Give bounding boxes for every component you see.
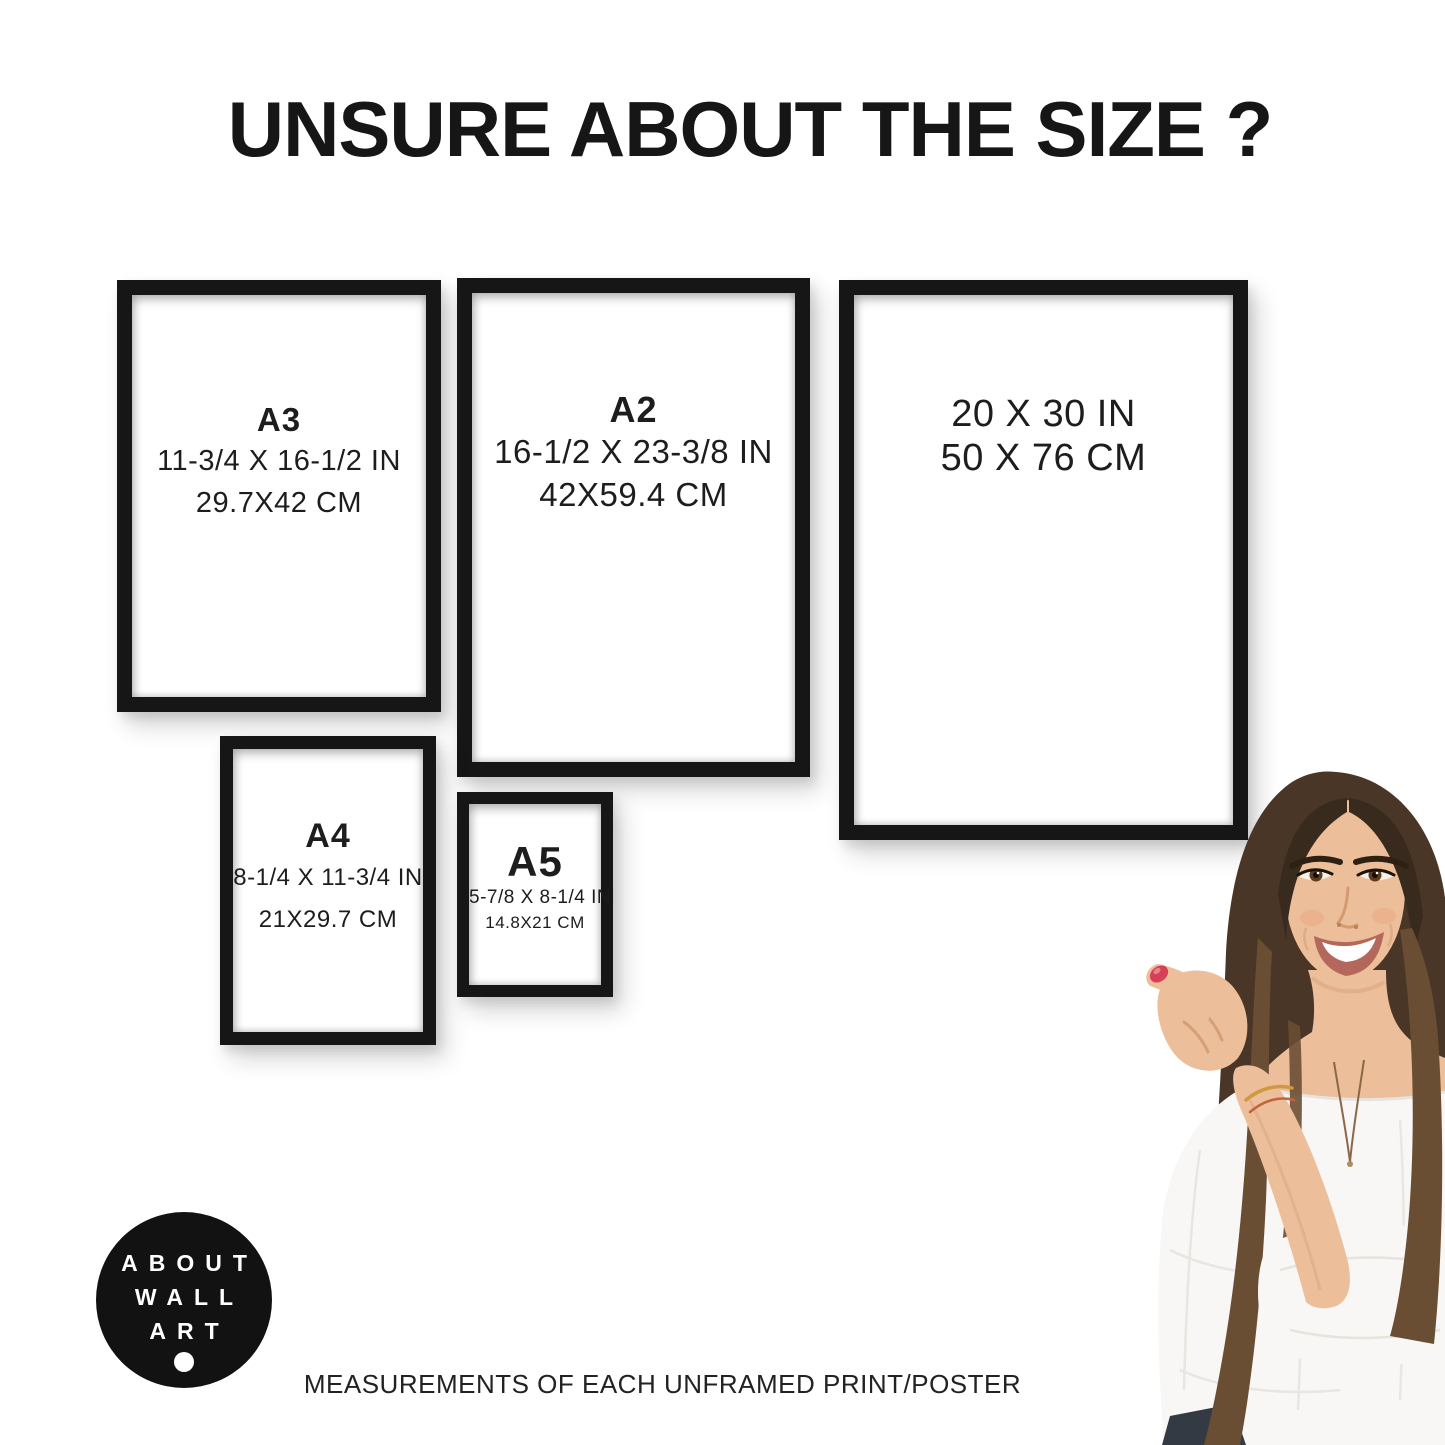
size-guide-infographic: UNSURE ABOUT THE SIZE ? A3 11-3/4 X 16-1… (0, 0, 1445, 1445)
frame-a2-label: A2 (472, 388, 795, 431)
frame-a5-centimeters: 14.8X21 CM (469, 911, 601, 936)
frame-a3-label: A3 (132, 400, 426, 440)
frame-a4-label: A4 (233, 816, 423, 857)
logo-line-art: ART (96, 1314, 283, 1348)
frame-a3: A3 11-3/4 X 16-1/2 IN 29.7X42 CM (117, 280, 441, 712)
frame-a4-inches: 8-1/4 X 11-3/4 IN (233, 857, 423, 899)
frame-a5-label: A5 (469, 839, 601, 885)
logo-line-wall: WALL (96, 1280, 283, 1314)
page-title: UNSURE ABOUT THE SIZE ? (55, 90, 1445, 170)
frame-a3-text: A3 11-3/4 X 16-1/2 IN 29.7X42 CM (132, 295, 426, 524)
frame-a2-text: A2 16-1/2 X 23-3/8 IN 42X59.4 CM (472, 293, 795, 517)
logo-line-about: ABOUT (96, 1246, 283, 1280)
frame-a4-mat: A4 8-1/4 X 11-3/4 IN 21X29.7 CM (233, 749, 423, 1032)
frame-a2-mat: A2 16-1/2 X 23-3/8 IN 42X59.4 CM (472, 293, 795, 762)
frame-a5-inches: 5-7/8 X 8-1/4 IN (469, 885, 601, 911)
frame-a4-centimeters: 21X29.7 CM (233, 899, 423, 941)
frame-a3-centimeters: 29.7X42 CM (132, 482, 426, 524)
frame-20x30: 20 X 30 IN 50 X 76 CM (839, 280, 1248, 840)
woman-pointing-photo (1100, 770, 1445, 1445)
frame-a5-text: A5 5-7/8 X 8-1/4 IN 14.8X21 CM (469, 804, 601, 935)
frame-a4: A4 8-1/4 X 11-3/4 IN 21X29.7 CM (220, 736, 436, 1045)
frame-a5-mat: A5 5-7/8 X 8-1/4 IN 14.8X21 CM (469, 804, 601, 985)
frame-20x30-mat: 20 X 30 IN 50 X 76 CM (854, 295, 1233, 825)
frame-a2: A2 16-1/2 X 23-3/8 IN 42X59.4 CM (457, 278, 810, 777)
frame-a5: A5 5-7/8 X 8-1/4 IN 14.8X21 CM (457, 792, 613, 997)
frame-a2-inches: 16-1/2 X 23-3/8 IN (472, 431, 795, 474)
frame-a3-inches: 11-3/4 X 16-1/2 IN (132, 440, 426, 482)
frame-20x30-centimeters: 50 X 76 CM (854, 437, 1233, 481)
frame-a3-mat: A3 11-3/4 X 16-1/2 IN 29.7X42 CM (132, 295, 426, 697)
brand-logo: ABOUT WALL ART (96, 1212, 272, 1388)
frame-a2-centimeters: 42X59.4 CM (472, 474, 795, 517)
frame-a4-text: A4 8-1/4 X 11-3/4 IN 21X29.7 CM (233, 749, 423, 941)
frame-20x30-text: 20 X 30 IN 50 X 76 CM (854, 295, 1233, 480)
frame-20x30-inches: 20 X 30 IN (854, 393, 1233, 437)
